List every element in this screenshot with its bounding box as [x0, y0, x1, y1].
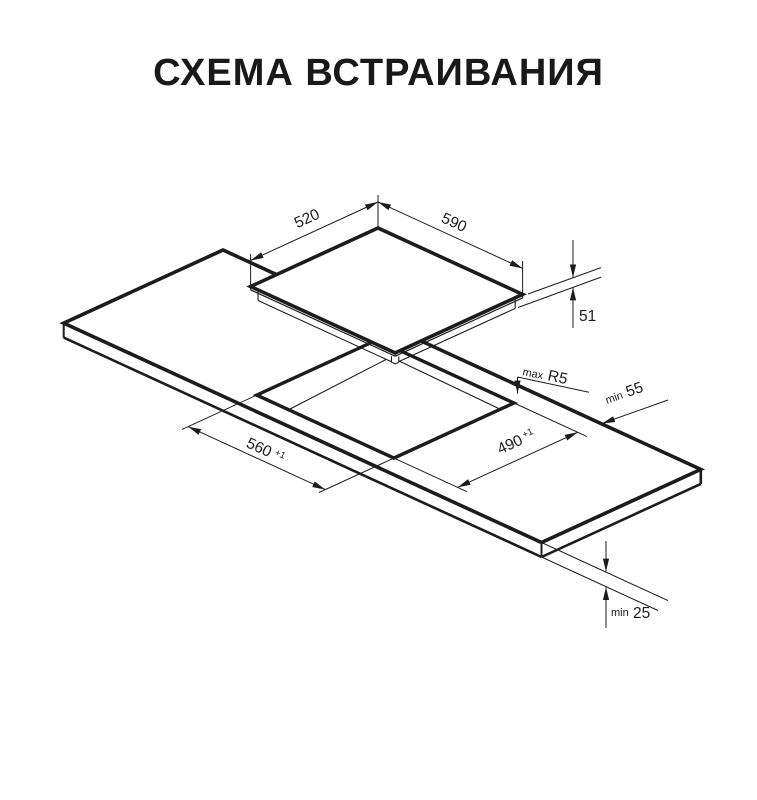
dim-ext-line [542, 543, 669, 601]
dim-line [188, 427, 325, 490]
label-hob-depth: 520 [292, 206, 323, 232]
label-worktop-thickness: 25 [633, 605, 650, 622]
label-rear-clearance-prefix: min [604, 390, 625, 407]
dim-ext-line [542, 557, 659, 611]
label-cutout-width-tolerance: +1 [273, 447, 287, 462]
dim-ext-line [182, 395, 257, 429]
label-cutout-width: 560 [244, 435, 275, 461]
label-corner-radius: R5 [546, 367, 569, 388]
label-worktop-thickness-prefix: min [611, 607, 629, 619]
dim-ext-line [518, 277, 601, 307]
label-rear-clearance: 55 [624, 379, 646, 401]
installation-diagram: 520 590 51 max R5 min 55 560 +1 490 +1 m… [0, 0, 757, 800]
label-hob-height: 51 [579, 308, 596, 325]
dim-ext-line [319, 458, 394, 492]
label-corner-radius-prefix: max [521, 366, 544, 382]
